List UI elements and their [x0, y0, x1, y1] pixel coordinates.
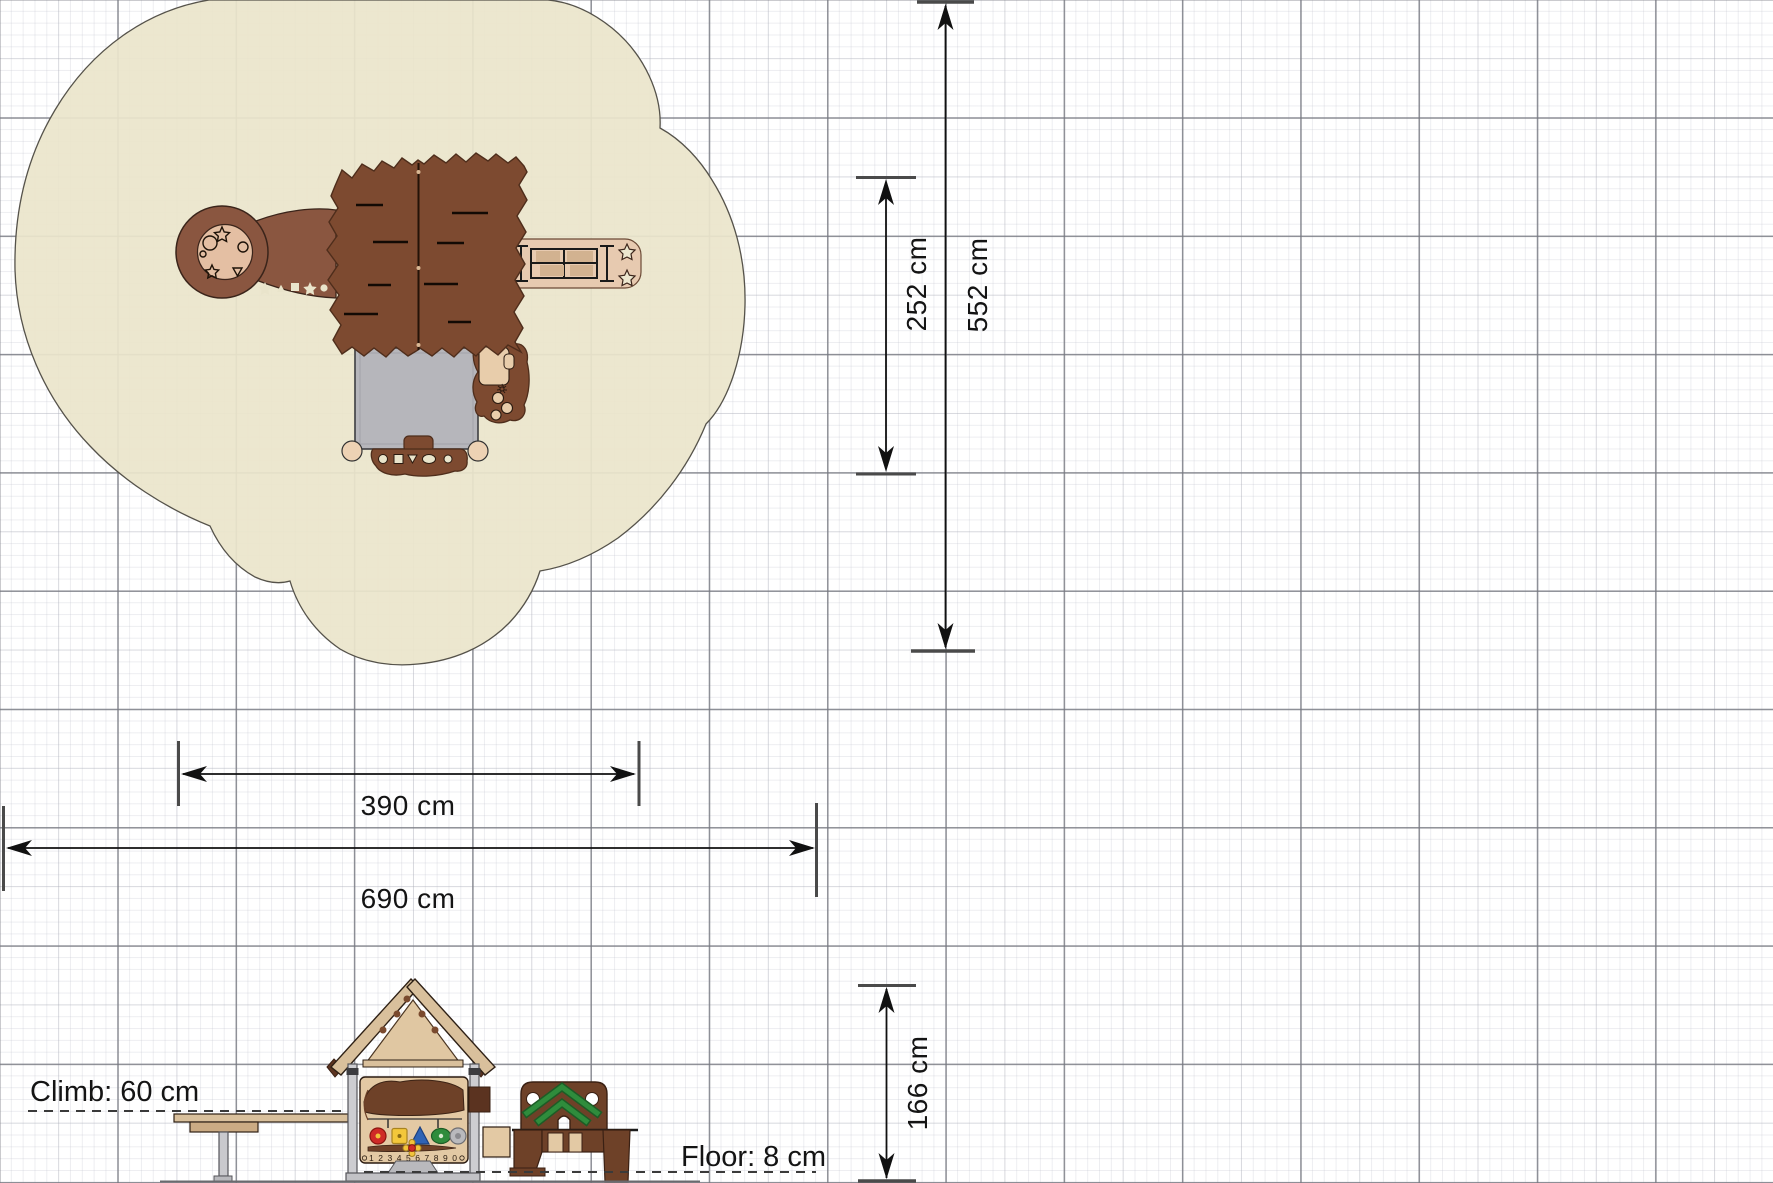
climber: [510, 1082, 638, 1182]
roof-gray-plan: [355, 348, 478, 449]
storage-box: [483, 1127, 510, 1157]
floor-height-label: Floor: 8 cm: [681, 1141, 826, 1174]
technical-drawing: 1 2 3 4 5 6 7 8 9 0: [0, 0, 1773, 1183]
climb-height-label: Climb: 60 cm: [30, 1076, 199, 1109]
drawing-canvas: 1 2 3 4 5 6 7 8 9 0: [0, 0, 1773, 1183]
plan-view: [4, 0, 976, 897]
dimension-label-390: 390 cm: [338, 790, 478, 822]
house-roof: [327, 979, 495, 1077]
side-table: [174, 1114, 348, 1181]
round-platform-plan: [176, 206, 268, 298]
tree-canopy-plan: [327, 153, 527, 357]
activity-panel: 1 2 3 4 5 6 7 8 9 0: [360, 1077, 468, 1163]
dimension-label-166: 166 cm: [902, 1023, 934, 1143]
post-circle-left: [342, 441, 362, 461]
dimension-label-552: 552 cm: [962, 225, 994, 345]
dimension-label-690: 690 cm: [338, 883, 478, 915]
dimension-label-252: 252 cm: [901, 224, 933, 344]
canopy-side: [469, 1087, 490, 1112]
post-circle-right: [468, 441, 488, 461]
